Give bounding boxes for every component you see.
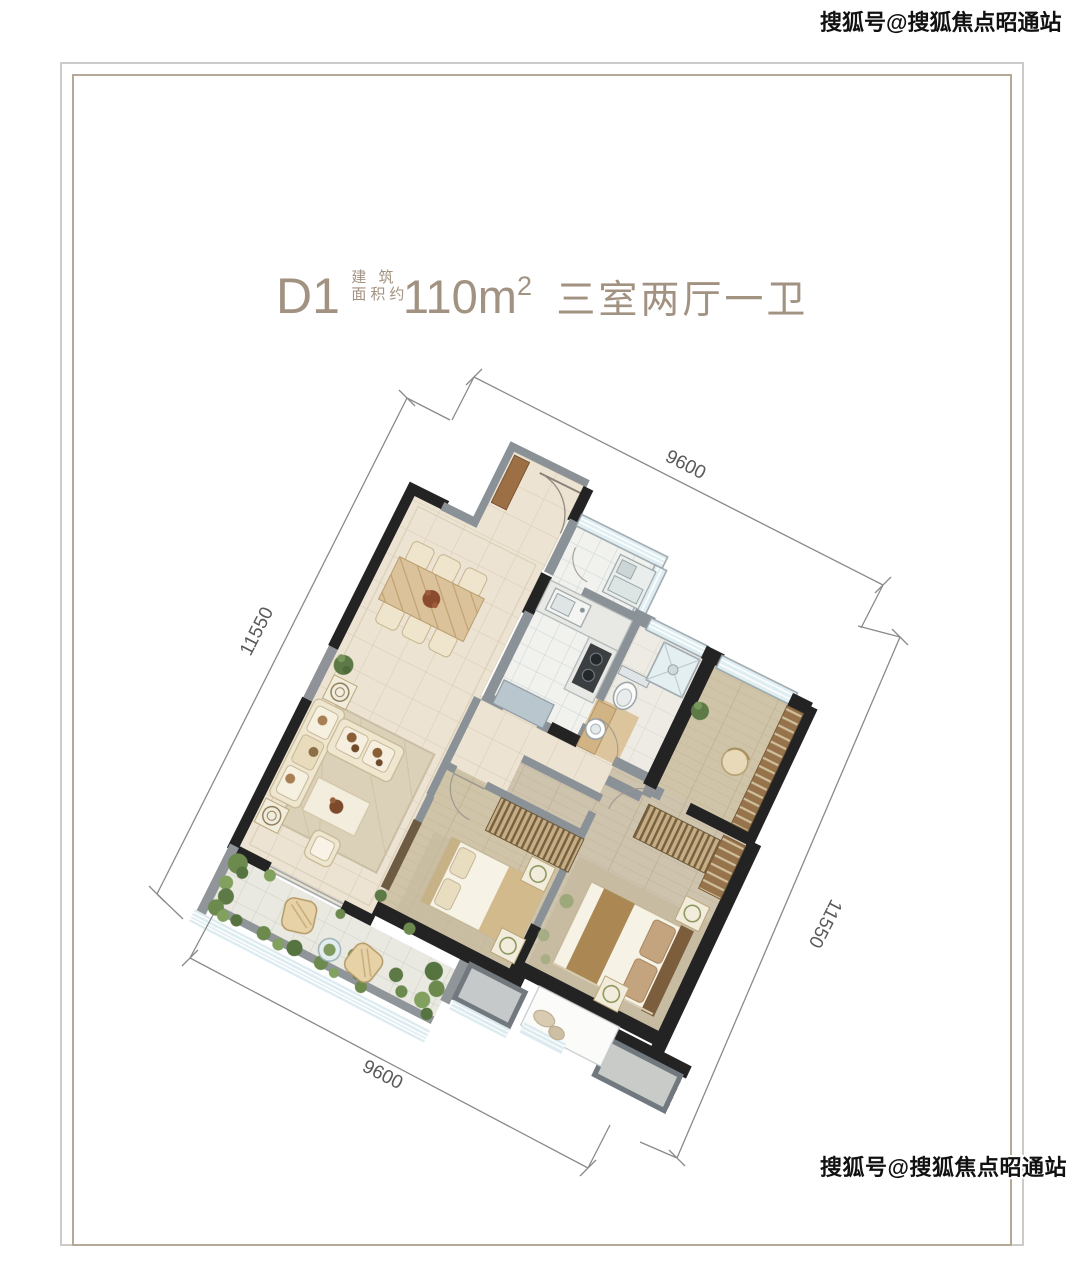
svg-text:9600: 9600	[359, 1056, 406, 1094]
svg-text:9600: 9600	[662, 446, 709, 484]
svg-text:11550: 11550	[804, 896, 846, 951]
svg-text:11550: 11550	[236, 604, 278, 659]
